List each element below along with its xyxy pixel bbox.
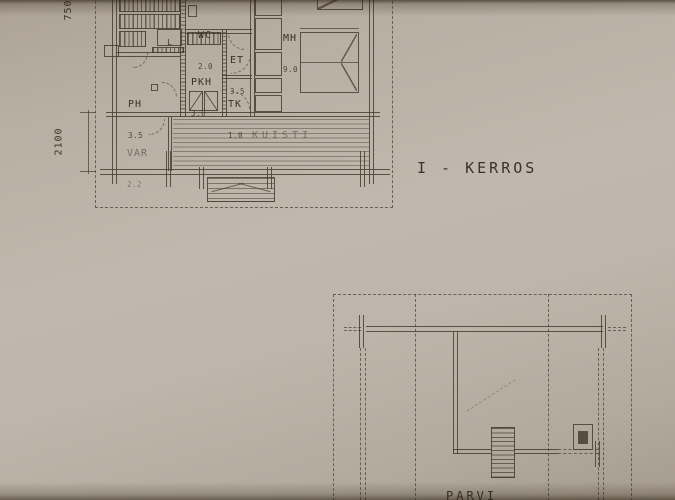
wc-sink-icon [188,5,197,17]
wardrobe-icon [255,52,282,76]
dimension-label-750: 750 [63,0,75,32]
porch-post-1 [166,151,171,187]
loft-railing-right [598,348,604,500]
lower-floor-line-right [548,294,549,500]
bed-partial-top-icon [317,0,363,10]
wardrobe-icon [255,95,282,112]
dimension-tick [80,171,96,172]
loft-room-left-wall [453,332,458,454]
loft-title: PARVI [446,489,497,500]
dimension-line [88,110,89,174]
first-floor-plan: L 2100 750 PH 3.5 PKH 3.0 WC 2.0 [0,0,675,260]
sauna-bench-upper [119,0,180,12]
sauna-bench-step [119,31,146,47]
log-end-stub [601,315,606,348]
blanket-fold [341,34,357,62]
log-end-left-wall [104,45,119,57]
sauna-bench-lower [119,14,180,29]
blanket-fold [341,63,357,91]
dimension-tick [80,112,96,113]
loft-gable-wall [366,326,603,332]
loft-room-bottom-wall-b [514,449,547,454]
staircase-icon [491,427,515,478]
loft-room-bottom-wall-a [453,449,492,454]
room-label-tk: TK 1.0 [228,77,256,162]
loft-room-bottom-wall-c [545,449,558,454]
exterior-wall-left [112,0,117,184]
loft-railing-left [360,348,366,500]
wardrobe-icon [255,78,282,93]
stove-icon: L [157,29,182,46]
stove-label: L [167,38,172,47]
chimney-flue [578,431,588,444]
exterior-wall-right [369,0,374,184]
chimney-icon [573,424,593,450]
log-end-stub [359,315,364,348]
stove-hearth [152,47,184,53]
room-label-kuisti: KUISTI [252,130,312,141]
room-label-mh: MH 9.0 [283,11,311,96]
porch-post-2 [199,167,204,189]
dimension-label-2100: 2100 [54,114,67,170]
log-end-stub [595,441,600,467]
wardrobe-icon [255,18,282,50]
sauna-hall-wall [180,0,186,117]
loft-eave-outline [333,294,632,500]
floor1-title: I - KERROS [417,159,537,177]
gable-notch-left [344,327,361,331]
room-label-wc: WC 2.0 [198,8,226,93]
gable-notch-right [608,327,626,331]
wardrobe-icon [255,0,282,16]
loft-plan: PARVI [0,260,675,500]
lower-floor-line-left [415,294,416,500]
room-label-var: VAR 2.2 [127,126,155,211]
